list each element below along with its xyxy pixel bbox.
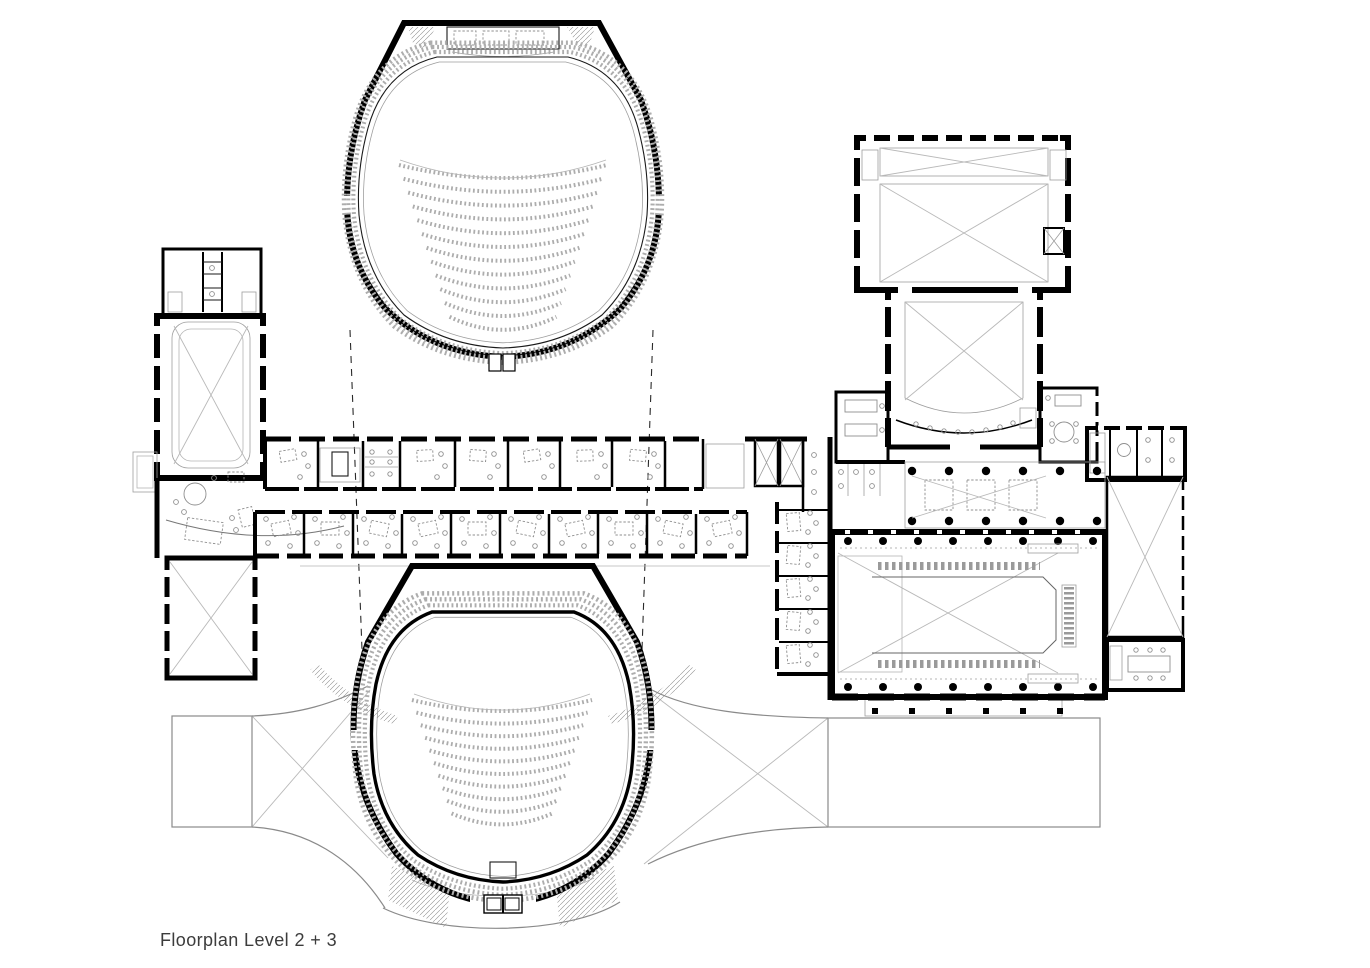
stairs-icon	[706, 444, 744, 488]
plaza-terraces	[172, 664, 1100, 928]
main-stage	[888, 290, 1040, 447]
stairs-icon	[1028, 544, 1078, 553]
parterre-seating-rows	[412, 700, 592, 824]
left-wing-bottom-block	[167, 558, 255, 678]
stairs-icon	[168, 292, 182, 312]
floorplan-sheet: Floorplan Level 2 + 3	[0, 0, 1370, 968]
east-extension-block	[1087, 428, 1185, 480]
rehearsal-void-crossed	[172, 322, 250, 468]
parterre-seating-rows	[399, 165, 607, 330]
lower-auditorium-plan	[351, 566, 655, 913]
left-wing	[133, 249, 344, 678]
office-furniture	[279, 449, 660, 480]
stage-tower-block	[857, 138, 1068, 294]
side-rooms-left	[836, 392, 888, 462]
stairs-icon	[862, 150, 878, 180]
sheet-title: Floorplan Level 2 + 3	[160, 930, 337, 951]
east-table-room	[1107, 640, 1183, 690]
office-furniture	[264, 515, 742, 549]
elevator-shafts	[755, 439, 803, 486]
right-complex	[832, 138, 1185, 697]
stairs-icon	[320, 448, 360, 482]
stairs-icon	[1028, 674, 1078, 683]
wc-cells	[365, 450, 398, 476]
colonnade	[865, 699, 1063, 716]
foyer-colonnade	[836, 462, 1105, 528]
stairs-icon	[1020, 408, 1036, 428]
east-void-room	[1107, 477, 1183, 637]
entrance-doors	[484, 895, 522, 913]
left-wing-top-block	[157, 249, 263, 316]
wc-icon	[1118, 444, 1131, 457]
stairs-icon	[242, 292, 256, 312]
upper-auditorium-plan	[343, 23, 663, 371]
stairs-icon	[1050, 150, 1066, 180]
side-hall	[832, 532, 1105, 697]
floorplan-drawing	[0, 0, 1370, 968]
stairs-icon	[1110, 646, 1122, 680]
